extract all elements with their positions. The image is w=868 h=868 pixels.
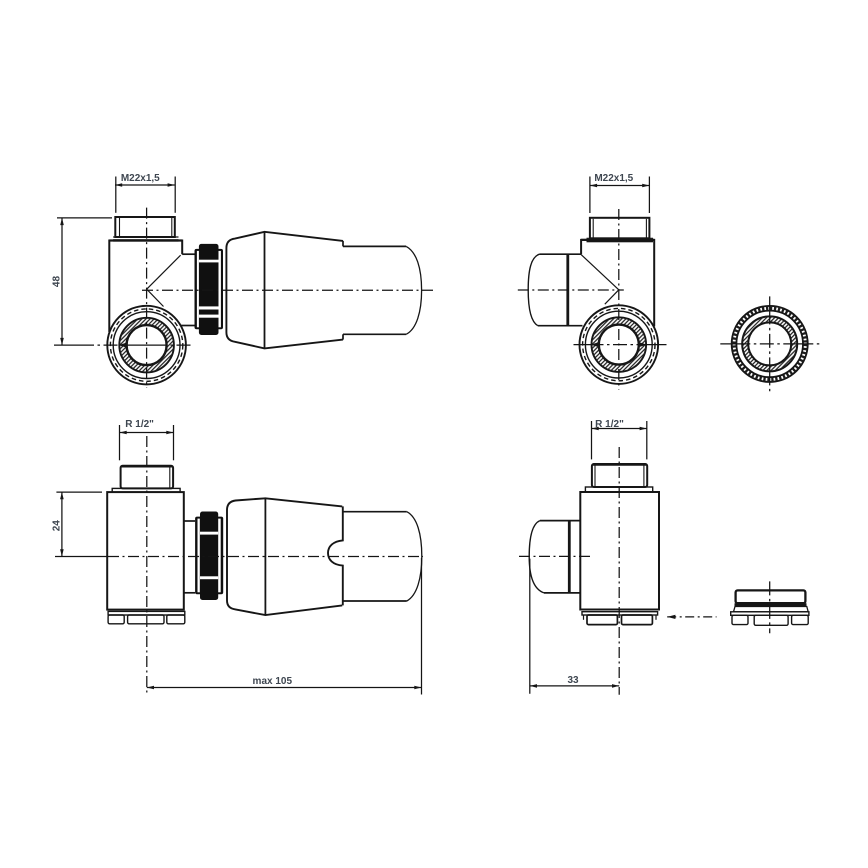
- svg-text:48: 48: [52, 276, 63, 288]
- svg-text:M22x1,5: M22x1,5: [121, 173, 160, 184]
- svg-text:24: 24: [52, 520, 63, 532]
- svg-text:M22x1,5: M22x1,5: [594, 173, 633, 184]
- svg-text:R 1/2": R 1/2": [125, 419, 154, 430]
- svg-text:33: 33: [567, 675, 579, 686]
- svg-text:max 105: max 105: [253, 676, 293, 687]
